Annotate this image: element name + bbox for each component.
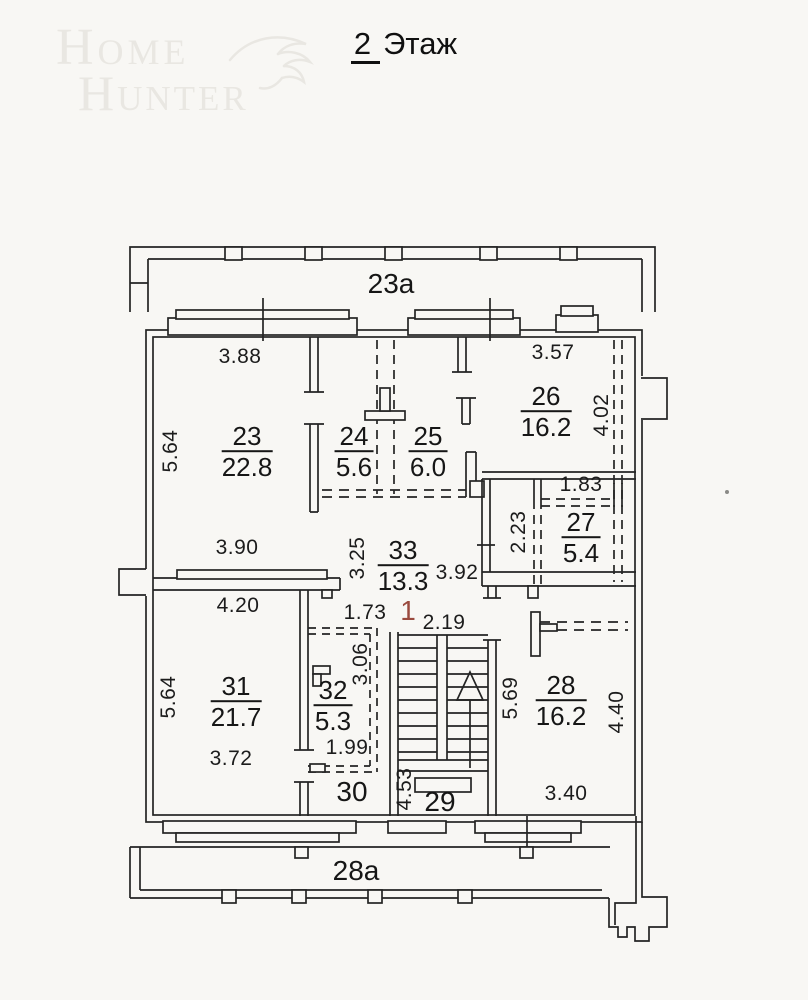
room-area: 16.2 <box>536 701 587 730</box>
dimension-label: 3.92 <box>436 561 479 585</box>
room-number: 28 <box>536 672 587 701</box>
dimension-label: 4.02 <box>590 394 614 437</box>
room-area: 21.7 <box>211 702 262 731</box>
room-label-32: 325.3 <box>314 677 353 735</box>
dimension-label: 2.19 <box>423 611 466 635</box>
floorplan-drawing <box>0 0 808 1000</box>
dimension-label: 5.64 <box>157 676 181 719</box>
room-area: 6.0 <box>409 452 448 481</box>
dimension-label: 4.53 <box>393 768 417 811</box>
zone-label-28а: 28а <box>333 855 380 887</box>
dimension-label: 5.64 <box>159 430 183 473</box>
room-label-31: 3121.7 <box>211 673 262 731</box>
stair-entry-mark: 1 <box>400 595 416 627</box>
room-label-26: 2616.2 <box>521 383 572 441</box>
zone-label-23а: 23а <box>368 268 415 300</box>
zone-label-30: 30 <box>336 776 367 808</box>
room-area: 5.3 <box>314 706 353 735</box>
dimension-label: 3.06 <box>349 643 373 686</box>
room-number: 27 <box>562 509 601 538</box>
dimension-label: 3.57 <box>532 341 575 365</box>
dimension-label: 1.73 <box>344 601 387 625</box>
room-label-33: 3313.3 <box>378 537 429 595</box>
room-area: 13.3 <box>378 566 429 595</box>
dimension-label: 1.99 <box>326 736 369 760</box>
room-label-25: 256.0 <box>409 423 448 481</box>
dimension-label: 4.40 <box>605 691 629 734</box>
room-number: 31 <box>211 673 262 702</box>
room-number: 25 <box>409 423 448 452</box>
dimension-label: 3.40 <box>545 782 588 806</box>
room-label-27: 275.4 <box>562 509 601 567</box>
dimension-label: 4.20 <box>217 594 260 618</box>
room-number: 32 <box>314 677 353 706</box>
room-label-23: 2322.8 <box>222 423 273 481</box>
dimension-label: 5.69 <box>499 677 523 720</box>
dimension-label: 3.88 <box>219 345 262 369</box>
room-label-28: 2816.2 <box>536 672 587 730</box>
room-area: 5.6 <box>335 452 374 481</box>
dimension-label: 3.72 <box>210 747 253 771</box>
dimension-label: 3.25 <box>346 537 370 580</box>
room-number: 26 <box>521 383 572 412</box>
room-number: 33 <box>378 537 429 566</box>
room-number: 23 <box>222 423 273 452</box>
room-area: 22.8 <box>222 452 273 481</box>
room-label-24: 245.6 <box>335 423 374 481</box>
room-number: 24 <box>335 423 374 452</box>
zone-label-29: 29 <box>424 786 455 818</box>
room-area: 16.2 <box>521 412 572 441</box>
dimension-label: 3.90 <box>216 536 259 560</box>
room-area: 5.4 <box>562 538 601 567</box>
dimension-label: 2.23 <box>507 511 531 554</box>
dimension-label: 1.83 <box>560 473 603 497</box>
floorplan-page: Home Hunter 2Этаж <box>0 0 808 1000</box>
